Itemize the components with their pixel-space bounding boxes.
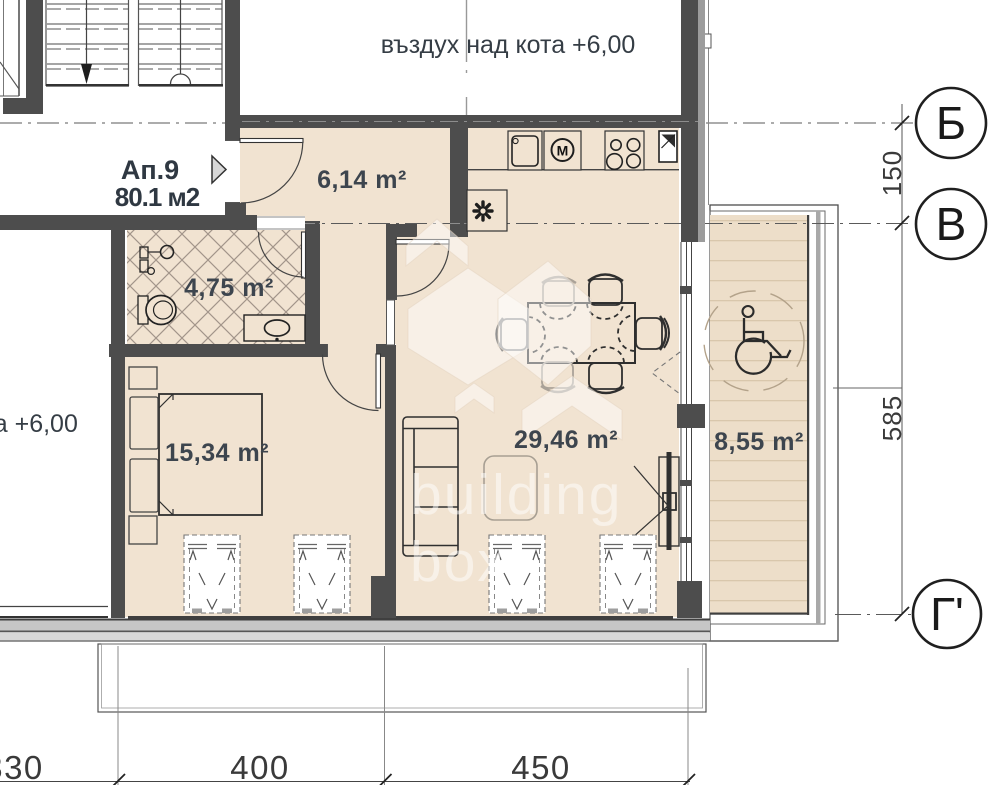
svg-text:29,46 m²: 29,46 m² — [514, 426, 618, 454]
svg-text:80.1 м2: 80.1 м2 — [115, 182, 200, 212]
svg-text:building: building — [410, 463, 623, 527]
svg-text:въздух над кота +6,00: въздух над кота +6,00 — [381, 31, 636, 59]
svg-text:Ап.9: Ап.9 — [121, 155, 179, 185]
svg-text:кота +6,00: кота +6,00 — [0, 410, 78, 438]
svg-text:330: 330 — [0, 749, 44, 785]
svg-text:6,14 m²: 6,14 m² — [317, 166, 407, 194]
svg-text:Б: Б — [936, 97, 966, 149]
svg-text:В: В — [936, 198, 967, 250]
svg-text:4,75 m²: 4,75 m² — [184, 274, 274, 302]
svg-text:M: M — [557, 143, 569, 159]
svg-text:450: 450 — [511, 749, 571, 785]
svg-text:box: box — [410, 530, 508, 594]
svg-text:8,55 m²: 8,55 m² — [714, 428, 804, 456]
svg-text:400: 400 — [230, 749, 290, 785]
svg-text:150: 150 — [877, 150, 907, 196]
svg-text:15,34 m²: 15,34 m² — [165, 439, 269, 467]
svg-text:Г': Г' — [930, 588, 964, 640]
svg-text:585: 585 — [877, 395, 907, 441]
